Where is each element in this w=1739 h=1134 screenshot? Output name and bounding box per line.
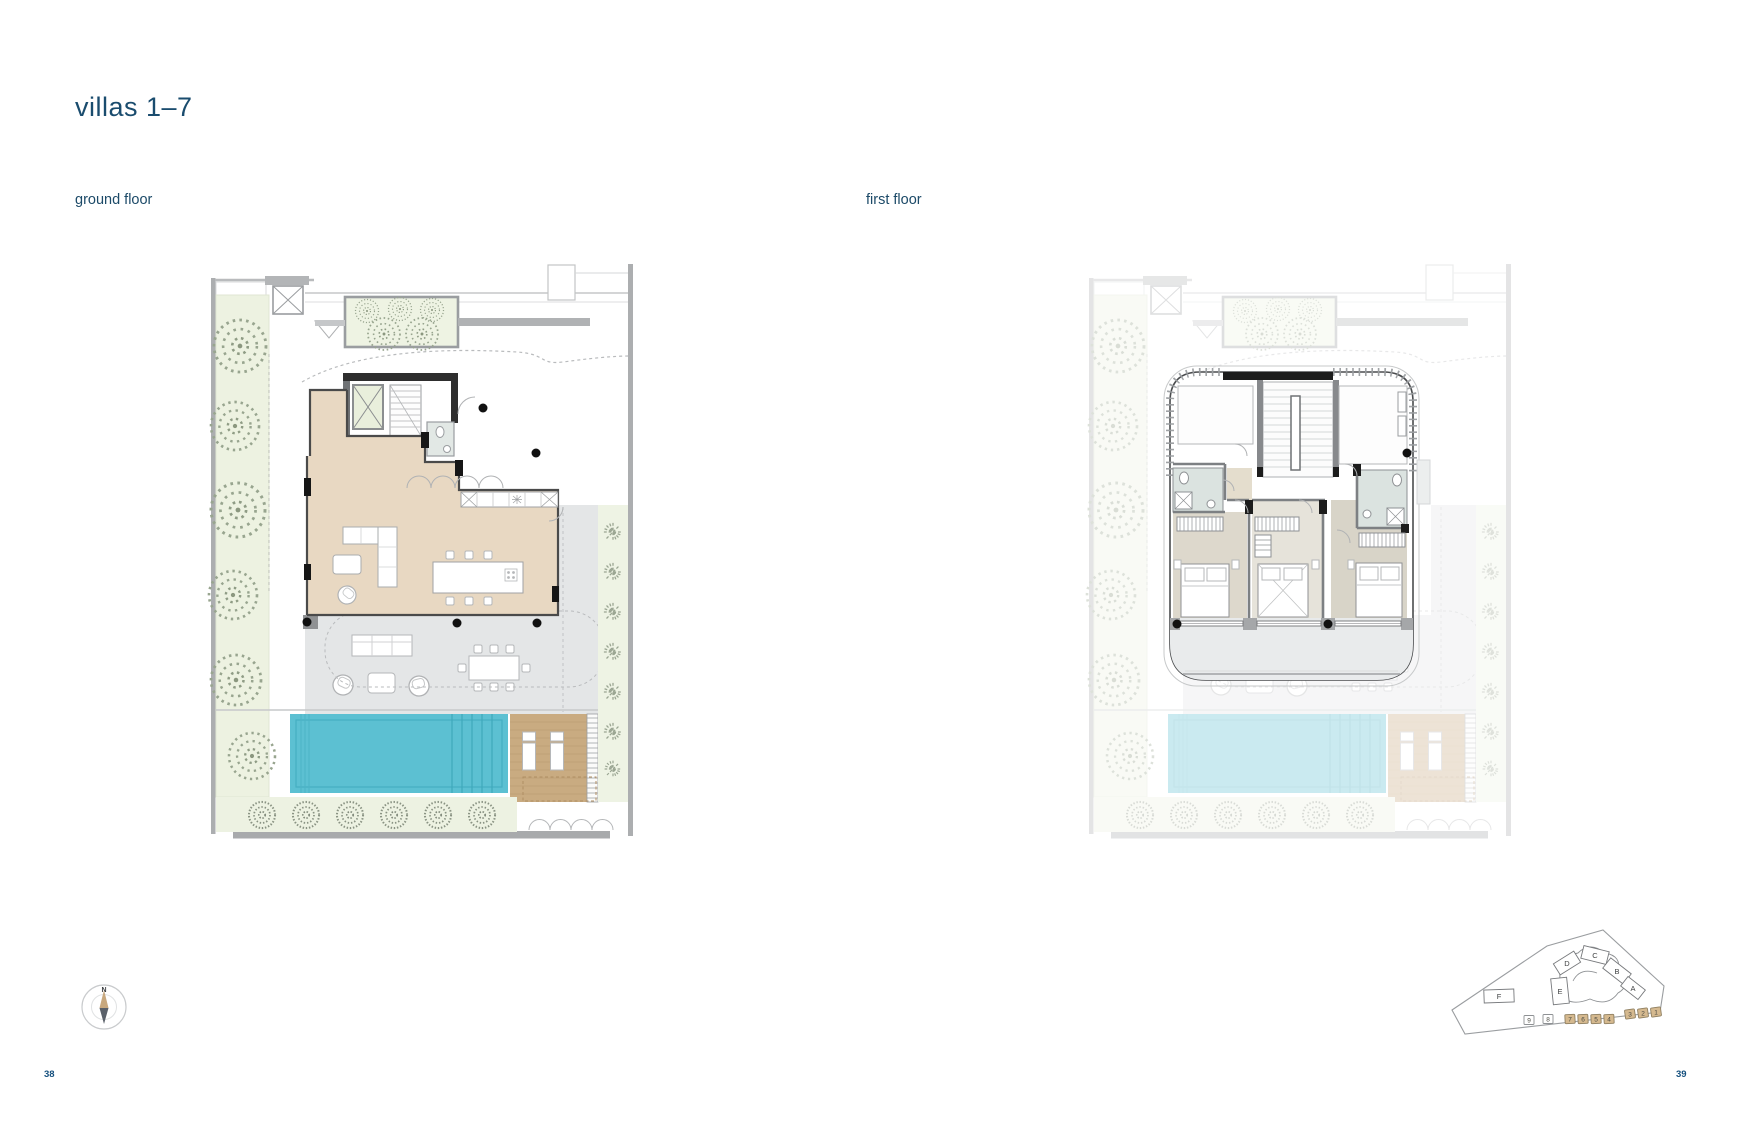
unit-9-label: 9 [1527,1018,1531,1025]
compass-north-text: N [101,987,106,994]
first-floor-label: first floor [866,192,922,208]
unit-7-label: 7 [1568,1017,1572,1024]
ground-floor-plan [207,264,637,842]
unit-8-label: 8 [1546,1017,1550,1024]
page-title: villas 1–7 [75,92,193,123]
first-floor-plan [1085,264,1515,842]
building-e-label: E [1557,987,1562,996]
building-b-label: B [1614,967,1619,976]
page-number-left: 38 [44,1069,55,1080]
page-number-right: 39 [1676,1069,1687,1080]
unit-4-label: 4 [1607,1017,1611,1024]
unit-1-label: 1 [1654,1010,1658,1017]
ground-floor-label: ground floor [75,192,152,208]
building-c-label: C [1592,951,1598,960]
unit-5-label: 5 [1594,1017,1598,1024]
compass: N [76,979,132,1035]
unit-6-label: 6 [1581,1017,1585,1024]
unit-2-label: 2 [1641,1011,1645,1018]
site-map: A B C D E F 9 8 7 6 5 4 3 2 1 [1440,923,1672,1045]
building-a-label: A [1630,984,1635,993]
unit-3-label: 3 [1628,1012,1632,1019]
building-d-label: D [1564,959,1570,968]
building-f-label: F [1497,992,1502,1001]
